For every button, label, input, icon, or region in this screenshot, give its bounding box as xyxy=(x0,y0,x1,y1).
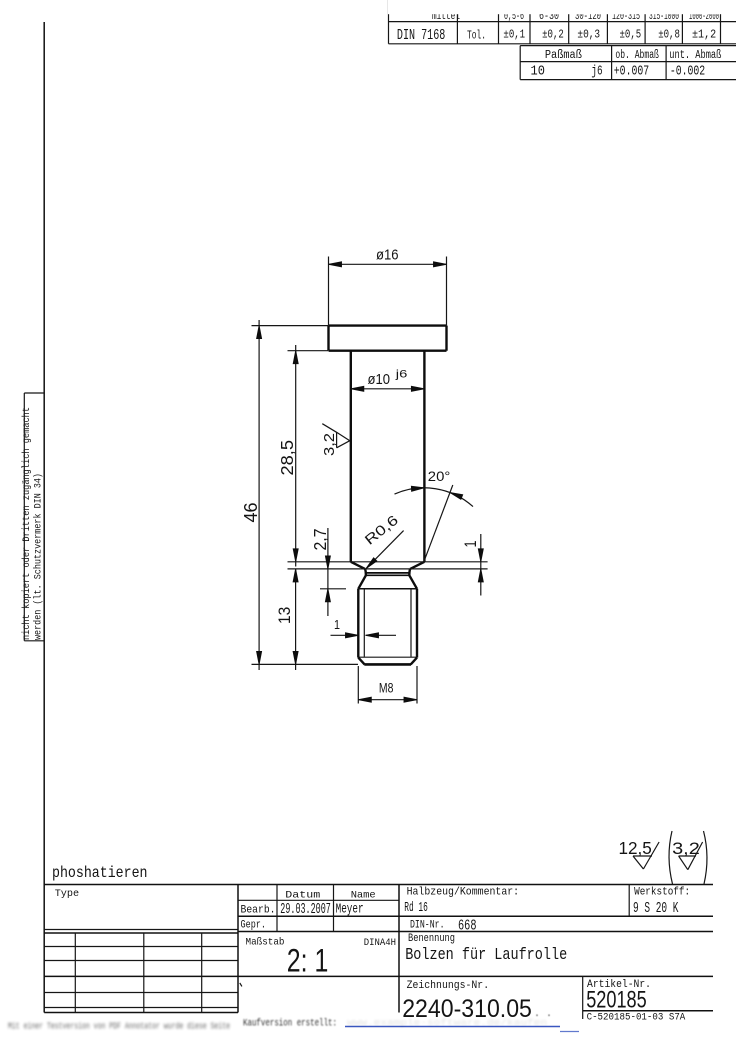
svg-text:M8: M8 xyxy=(379,680,394,696)
svg-text:28,5: 28,5 xyxy=(277,440,297,476)
svg-text:Gepr.: Gepr. xyxy=(241,920,267,932)
svg-text:Zeichnungs-Nr.: Zeichnungs-Nr. xyxy=(407,980,490,992)
svg-text:13: 13 xyxy=(275,607,294,624)
svg-text:±0,8: ±0,8 xyxy=(658,28,680,42)
svg-text:www.example-software.de/kaufen: www.example-software.de/kaufen xyxy=(347,1018,547,1028)
svg-text:-0.002: -0.002 xyxy=(670,65,705,80)
svg-text:j6: j6 xyxy=(591,65,602,80)
svg-text:20°: 20° xyxy=(428,469,451,484)
svg-text:Rd 16: Rd 16 xyxy=(404,901,428,916)
svg-text:nicht kopiert oder Dritten zug: nicht kopiert oder Dritten zugänglich ge… xyxy=(21,407,32,640)
svg-text:46: 46 xyxy=(241,503,261,523)
svg-text:520185: 520185 xyxy=(586,987,647,1014)
svg-text:Bolzen für Laufrolle: Bolzen für Laufrolle xyxy=(405,945,567,964)
svg-text:werden (lt. Schutzvermerk DIN: werden (lt. Schutzvermerk DIN 34) xyxy=(33,473,44,640)
svg-text:668: 668 xyxy=(458,918,477,935)
svg-text:ob. Abmaß: ob. Abmaß xyxy=(615,49,659,62)
svg-text:1: 1 xyxy=(461,541,480,548)
svg-text:9 S 20 K: 9 S 20 K xyxy=(633,901,679,917)
svg-text:DIN 7168: DIN 7168 xyxy=(397,27,445,44)
svg-text:ø10: ø10 xyxy=(368,372,391,388)
svg-text:3,2: 3,2 xyxy=(321,433,338,456)
svg-text:DIN-Nr.: DIN-Nr. xyxy=(410,920,445,932)
svg-text:Tol.: Tol. xyxy=(467,29,486,43)
svg-text:Maßstab: Maßstab xyxy=(246,936,285,948)
svg-text:j6: j6 xyxy=(394,369,407,381)
svg-text:2: 1: 2: 1 xyxy=(287,943,329,979)
svg-text:±0,1: ±0,1 xyxy=(503,28,525,42)
svg-text:unt. Abmaß: unt. Abmaß xyxy=(669,49,721,62)
svg-text:Datum: Datum xyxy=(285,890,320,902)
svg-text:Meyer: Meyer xyxy=(336,903,364,918)
svg-text:29.03.2007: 29.03.2007 xyxy=(280,901,331,918)
svg-text:±0,2: ±0,2 xyxy=(542,28,564,42)
svg-text:Type: Type xyxy=(55,888,79,900)
svg-text:±1,2: ±1,2 xyxy=(692,28,716,42)
svg-text:+0.007: +0.007 xyxy=(614,65,649,80)
svg-text:±0,5: ±0,5 xyxy=(620,28,642,42)
svg-text:Bearb.: Bearb. xyxy=(241,905,276,917)
svg-text:Werkstoff:: Werkstoff: xyxy=(634,887,690,899)
svg-text:Kaufversion erstellt:: Kaufversion erstellt: xyxy=(243,1018,337,1030)
svg-text:Paßmaß: Paßmaß xyxy=(545,49,582,62)
svg-text:C-520185-01-03 S7A: C-520185-01-03 S7A xyxy=(587,1013,686,1024)
svg-text:Mit einer Testversion von PDF: Mit einer Testversion von PDF Annotator … xyxy=(8,1022,230,1032)
svg-text:12,5: 12,5 xyxy=(619,838,652,858)
svg-text:ø16: ø16 xyxy=(376,247,399,263)
svg-text:±0,3: ±0,3 xyxy=(577,28,600,42)
svg-text:1: 1 xyxy=(334,618,340,632)
svg-text:Benennung: Benennung xyxy=(408,933,455,945)
svg-text:10: 10 xyxy=(531,65,545,80)
svg-text:2,7: 2,7 xyxy=(310,529,330,551)
svg-text:phoshatieren: phoshatieren xyxy=(52,864,148,882)
svg-text:Name: Name xyxy=(351,890,376,902)
svg-text:Halbzeug/Kommentar:: Halbzeug/Kommentar: xyxy=(407,887,519,899)
svg-text:DINA4H: DINA4H xyxy=(364,937,396,949)
